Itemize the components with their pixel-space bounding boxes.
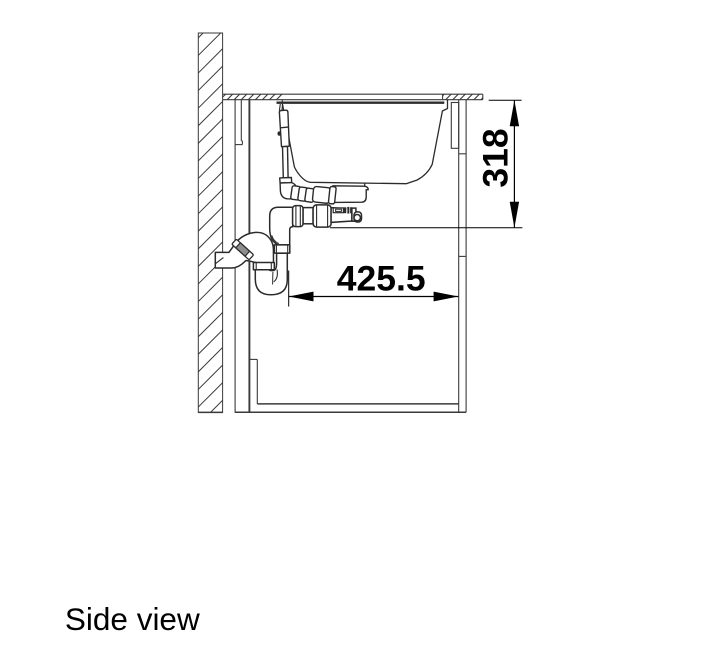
svg-text:318: 318 bbox=[476, 128, 516, 187]
svg-text:425.5: 425.5 bbox=[337, 258, 426, 298]
svg-text:Side view: Side view bbox=[65, 601, 200, 637]
